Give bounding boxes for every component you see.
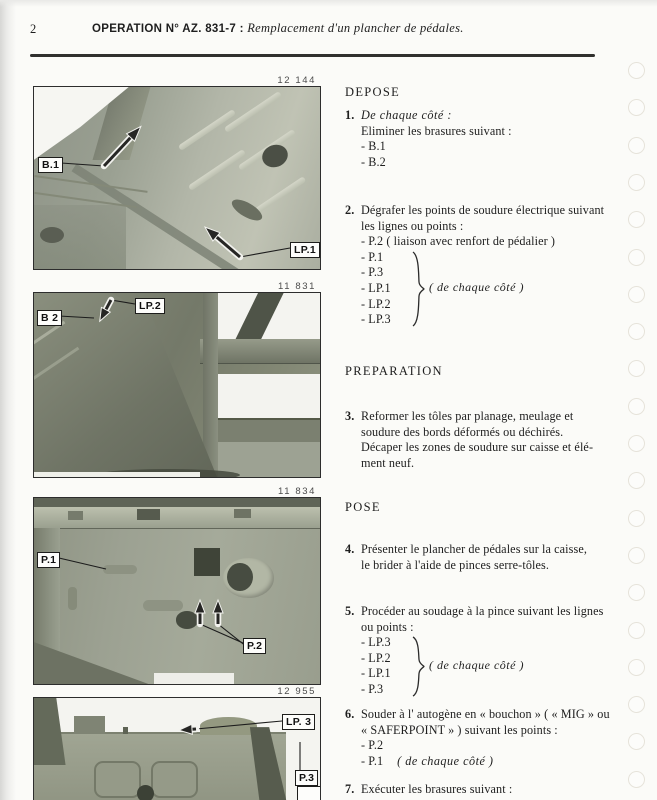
callout-arrow [100, 123, 145, 170]
photo-label: LP.1 [290, 242, 320, 258]
instruction-line: ou points : [361, 620, 645, 636]
step-number: 6. [345, 707, 354, 723]
operation-title: OPERATION N° AZ. 831-7 : [92, 23, 247, 35]
figure-photo: B.1 LP.1 [33, 86, 321, 270]
instruction-line: - B.1 [361, 139, 645, 155]
instruction-line: - LP.3 [361, 635, 645, 651]
scan-edge-left [0, 0, 16, 800]
step-body: Souder à l' autogène en « bouchon » ( « … [361, 707, 645, 769]
callout-arrow [213, 600, 223, 624]
figure-number: 11 834 [33, 486, 319, 497]
photo-callouts [34, 87, 320, 269]
step-number: 1. [345, 108, 354, 124]
brace-note: ( de chaque côté ) [429, 658, 524, 674]
instruction-line: - LP.3 [361, 312, 645, 328]
photo-callouts [34, 698, 320, 800]
instruction-line: De chaque côté : [361, 108, 645, 124]
instruction-step: 7.Exécuter les brasures suivant :- B.1( … [345, 782, 645, 800]
page-number: 2 [30, 22, 36, 37]
instruction-step: 4.Présenter le plancher de pédales sur l… [345, 542, 645, 573]
instruction-line: - P.2 ( liaison avec renfort de pédalier… [361, 234, 645, 250]
step-number: 7. [345, 782, 354, 798]
step-body: Présenter le plancher de pédales sur la … [361, 542, 645, 573]
figure-photo: B 2 LP.2 [33, 292, 321, 478]
instruction-line: - LP.2 [361, 297, 645, 313]
instruction-step: 5.Procéder au soudage à la pince suivant… [345, 604, 645, 698]
step-body: De chaque côté :Eliminer les brasures su… [361, 108, 645, 170]
figure-photo: LP. 3 P.3 [33, 697, 321, 800]
brace-note: ( de chaque côté ) [429, 280, 524, 296]
instruction-line: Exécuter les brasures suivant : [361, 782, 645, 798]
instruction-line: - P.3 [361, 265, 645, 281]
instruction-line: - P.2 [361, 738, 645, 754]
instruction-line: Dégrafer les points de soudure électriqu… [361, 203, 645, 219]
photo-label: P.2 [243, 638, 266, 654]
instruction-step: 3.Reformer les tôles par planage, meulag… [345, 409, 645, 471]
instruction-step: 2.Dégrafer les points de soudure électri… [345, 203, 645, 328]
figure-4: 12 955 LP. 3 P.3 [33, 686, 319, 800]
step-body: Exécuter les brasures suivant :- B.1( de… [361, 782, 645, 800]
group-brace [411, 636, 427, 697]
step-number: 2. [345, 203, 354, 219]
instruction-step: 6.Souder à l' autogène en « bouchon » ( … [345, 707, 645, 769]
step-number: 3. [345, 409, 354, 425]
instruction-line: le brider à l'aide de pinces serre-tôles… [361, 558, 645, 574]
side-note: ( de chaque côté ) [397, 754, 493, 768]
photo-label: LP.2 [135, 298, 165, 314]
photo-label: B 2 [37, 310, 62, 326]
callout-arrow [201, 223, 243, 261]
callout-arrow [179, 724, 197, 735]
photo-label: B.1 [38, 157, 63, 173]
instruction-line: Eliminer les brasures suivant : [361, 124, 645, 140]
instruction-line: - P.1( de chaque côté ) [361, 754, 645, 770]
instruction-line: Décaper les zones de soudure sur caisse … [361, 440, 645, 456]
instruction-step: 1.De chaque côté :Eliminer les brasures … [345, 108, 645, 170]
instruction-line: Souder à l' autogène en « bouchon » ( « … [361, 707, 645, 723]
instruction-line: - P.1 [361, 250, 645, 266]
callout-detail-box [297, 786, 321, 800]
instruction-line: Reformer les tôles par planage, meulage … [361, 409, 645, 425]
instruction-line: les lignes ou points : [361, 219, 645, 235]
figure-photo: P.1 P.2 [33, 497, 321, 685]
figure-number: 12 144 [33, 75, 319, 86]
instruction-line: ment neuf. [361, 456, 645, 472]
figure-number: 11 831 [33, 281, 319, 292]
group-brace [411, 251, 427, 327]
section-heading: PREPARATION [345, 364, 443, 379]
photo-label: LP. 3 [282, 714, 315, 730]
instruction-line: - B.2 [361, 155, 645, 171]
figure-number: 12 955 [33, 686, 319, 697]
instruction-line: soudure des bords déformés ou déchirés. [361, 425, 645, 441]
step-number: 5. [345, 604, 354, 620]
photo-callouts [34, 293, 320, 477]
step-body: Dégrafer les points de soudure électriqu… [361, 203, 645, 328]
figure-1: 12 144 [33, 75, 319, 270]
figure-2: 11 831 B 2 [33, 281, 319, 478]
manual-page: 2 OPERATION N° AZ. 831-7 : Remplacement … [0, 0, 657, 800]
instructions-column: DEPOSE1.De chaque côté :Eliminer les bra… [345, 0, 650, 800]
photo-label: P.1 [37, 552, 60, 568]
section-heading: DEPOSE [345, 85, 400, 100]
section-heading: POSE [345, 500, 381, 515]
photo-label: P.3 [295, 770, 318, 786]
callout-arrow [95, 298, 115, 324]
step-body: Procéder au soudage à la pince suivant l… [361, 604, 645, 698]
figure-3: 11 834 [33, 486, 319, 685]
step-number: 4. [345, 542, 354, 558]
photo-callouts [34, 498, 320, 684]
step-body: Reformer les tôles par planage, meulage … [361, 409, 645, 471]
callout-arrow [195, 600, 205, 624]
instruction-line: - P.3 [361, 682, 645, 698]
instruction-line: Présenter le plancher de pédales sur la … [361, 542, 645, 558]
instruction-line: « SAFERPOINT » ) suivant les points : [361, 723, 645, 739]
instruction-line: Procéder au soudage à la pince suivant l… [361, 604, 645, 620]
